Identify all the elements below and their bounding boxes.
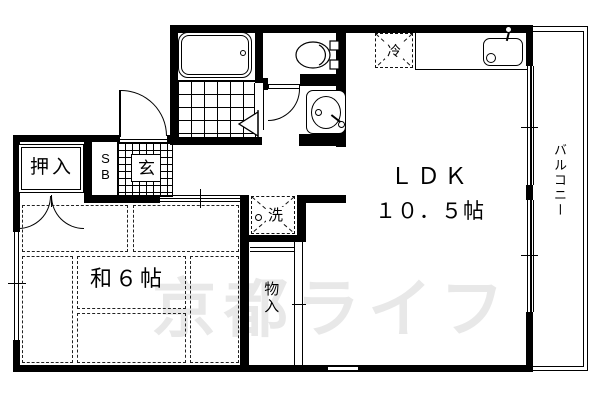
wall-washroom-south xyxy=(299,134,346,146)
wall-bath-toilet xyxy=(255,25,263,83)
west-window xyxy=(14,232,15,340)
ldk-size-label: １０．５帖 xyxy=(375,200,485,224)
wall-entry-north xyxy=(13,135,120,142)
kitchen-faucet-knob xyxy=(505,26,512,33)
tatami-mat xyxy=(22,205,128,252)
shoebox-label: SB xyxy=(97,151,112,183)
fridge-label: 冷 xyxy=(385,43,403,59)
watermark: 京都ライフ xyxy=(152,258,512,350)
bathtub-drain xyxy=(240,50,246,56)
balcony-label: バルコニー xyxy=(551,143,566,218)
balcony-inner-rail xyxy=(531,366,584,367)
tatami-mat xyxy=(22,256,73,363)
bathtub-inner-line xyxy=(181,35,249,75)
monoire-top-line xyxy=(250,251,294,252)
kitchen-sink-drain xyxy=(486,53,496,63)
washer-label: 洗 xyxy=(266,207,285,224)
washer-drain xyxy=(255,214,262,221)
tatami-mat xyxy=(133,205,239,252)
east-window-upper xyxy=(527,66,528,185)
east-window-lower xyxy=(527,200,528,312)
wall-washer-south xyxy=(249,235,306,242)
oshiire-label: 押入 xyxy=(30,157,74,179)
front-door-arc xyxy=(121,90,167,136)
sliding-door-line xyxy=(160,198,242,199)
toilet-icon xyxy=(290,36,346,76)
balcony-inner-rail xyxy=(531,31,584,32)
wall-washer-north-ext xyxy=(306,195,346,203)
west-window xyxy=(18,232,19,340)
sliding-door-line xyxy=(160,201,242,202)
balcony-inner-rail xyxy=(583,31,584,367)
entry-threshold-line xyxy=(120,139,167,140)
toilet-door-arc xyxy=(268,89,300,121)
wall-south xyxy=(13,365,533,372)
genkan-label: 玄 xyxy=(138,159,155,179)
monoire-top-line xyxy=(250,247,294,248)
washbasin-faucet-knob xyxy=(338,121,345,128)
wall-bath-south xyxy=(170,137,262,145)
wall-oshiire-sb xyxy=(84,142,92,195)
washbasin-drain xyxy=(315,109,322,116)
ldk-label: ＬＤＫ xyxy=(390,163,471,189)
bathroom-door-arrow-icon xyxy=(234,110,260,138)
south-window xyxy=(328,366,358,371)
floor-plan: バルコニー 冷 玄 SB 押入 xyxy=(0,0,600,400)
